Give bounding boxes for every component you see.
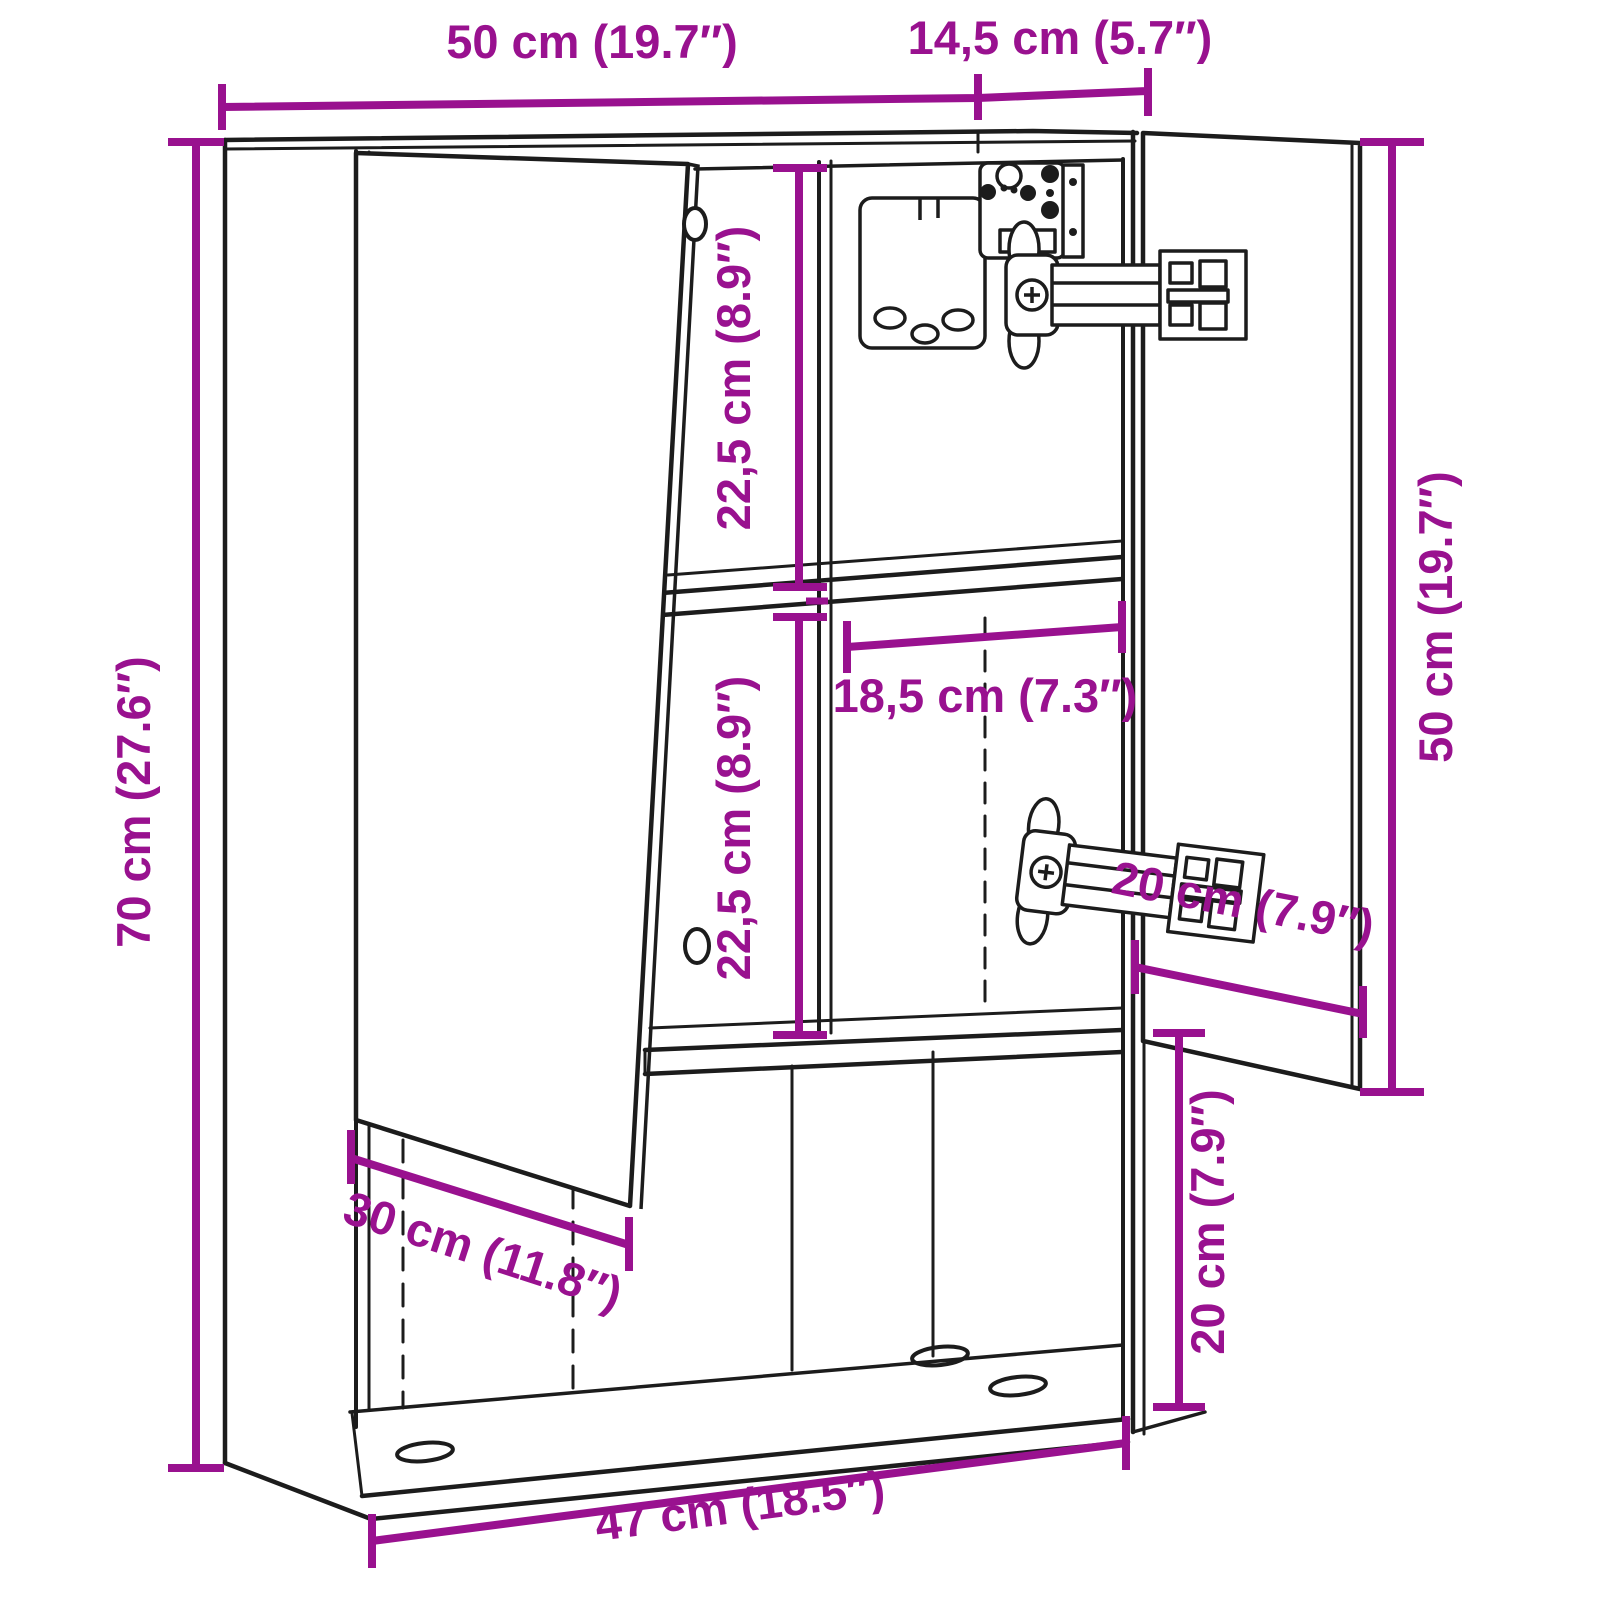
lower-shelf-front-bottom (645, 1052, 1122, 1074)
carcass-top-inner-edge (225, 141, 1135, 149)
left-door-panel (356, 153, 688, 1206)
mounting-hole (396, 1440, 454, 1464)
label-inner-width: 18,5 cm (7.3″) (833, 669, 1138, 722)
dim-line-top (222, 91, 1148, 107)
label-upper-inner-height: 22,5 cm (8.9″) (707, 226, 760, 531)
strip-screw (1069, 228, 1077, 236)
cabinet-drawing: 50 cm (19.7″) 14,5 cm (5.7″) 70 cm (27.6… (0, 0, 1600, 1600)
lower-shelf-back-edge (650, 1008, 1122, 1028)
label-top-depth: 14,5 cm (5.7″) (908, 11, 1213, 64)
hinge-cup-hole (685, 929, 709, 963)
label-left-height: 70 cm (27.6″) (107, 656, 160, 948)
mounting-hole (989, 1374, 1047, 1398)
carcass-top-edge (225, 131, 1137, 140)
upper-shelf-front-bottom (662, 579, 1122, 615)
label-bottom-section-height: 20 cm (7.9″) (1181, 1089, 1234, 1354)
bottom-left-slant-edge (225, 1463, 371, 1519)
mounting-hole (911, 1344, 969, 1368)
label-right-door-height: 50 cm (19.7″) (1409, 471, 1462, 763)
lower-shelf-front-top (645, 1030, 1122, 1050)
label-lower-inner-height: 22,5 cm (8.9″) (707, 676, 760, 981)
hinge-cup-hole (684, 208, 706, 240)
upper-shelf-front-top (662, 557, 1122, 593)
label-top-width: 50 cm (19.7″) (446, 15, 738, 68)
dimension-diagram: 50 cm (19.7″) 14,5 cm (5.7″) 70 cm (27.6… (0, 0, 1600, 1600)
strip-screw (1069, 178, 1077, 186)
upper-shelf-back-edge (668, 541, 1122, 575)
label-bottom-inner-width: 47 cm (18.5″) (592, 1460, 888, 1551)
